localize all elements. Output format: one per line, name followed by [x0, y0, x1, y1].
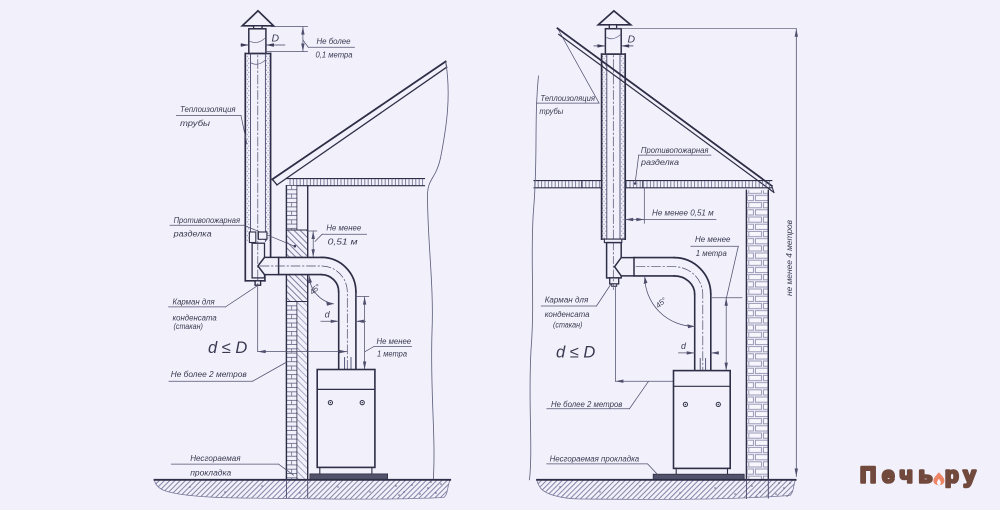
svg-text:разделка: разделка	[173, 229, 212, 239]
svg-text:Не более: Не более	[317, 36, 351, 46]
svg-text:d ≤ D: d ≤ D	[556, 344, 595, 362]
svg-text:Не менее: Не менее	[377, 336, 412, 346]
svg-text:Не более 2 метров: Не более 2 метров	[551, 399, 623, 409]
svg-text:трубы: трубы	[539, 106, 564, 116]
svg-text:(стакан): (стакан)	[553, 320, 583, 330]
svg-text:трубы: трубы	[180, 118, 211, 128]
svg-text:Не менее: Не менее	[326, 223, 361, 233]
svg-text:1 метра: 1 метра	[696, 248, 727, 258]
svg-text:D: D	[272, 33, 280, 45]
svg-text:ру: ру	[945, 463, 981, 488]
svg-text:Теплоизоляция: Теплоизоляция	[540, 93, 595, 103]
svg-text:не менее 4 метров: не менее 4 метров	[784, 220, 794, 296]
svg-text:конденсата: конденсата	[545, 309, 590, 319]
svg-text:Карман для: Карман для	[173, 297, 216, 307]
svg-text:d ≤ D: d ≤ D	[208, 339, 247, 357]
svg-text:0,1 метра: 0,1 метра	[316, 49, 353, 59]
svg-text:Не менее: Не менее	[695, 234, 731, 244]
svg-text:Не менее 0,51 м: Не менее 0,51 м	[652, 208, 714, 218]
svg-text:Карман для: Карман для	[545, 295, 589, 305]
svg-text:1 метра: 1 метра	[377, 349, 407, 359]
svg-text:Несгораемая: Несгораемая	[190, 453, 241, 463]
svg-text:Не более 2 метров: Не более 2 метров	[171, 369, 247, 379]
svg-text:Печь: Печь	[860, 463, 938, 488]
svg-text:Несгораемая прокладка: Несгораемая прокладка	[550, 453, 640, 463]
svg-text:0,51 м: 0,51 м	[328, 237, 358, 247]
svg-text:прокладка: прокладка	[190, 467, 231, 477]
svg-text:разделка: разделка	[640, 157, 679, 167]
svg-text:D: D	[628, 34, 636, 46]
svg-text:Противопожарная: Противопожарная	[174, 215, 241, 225]
svg-text:(стакан): (стакан)	[174, 321, 204, 331]
svg-text:Теплоизоляция: Теплоизоляция	[180, 104, 236, 114]
svg-text:Противопожарная: Противопожарная	[641, 145, 709, 155]
